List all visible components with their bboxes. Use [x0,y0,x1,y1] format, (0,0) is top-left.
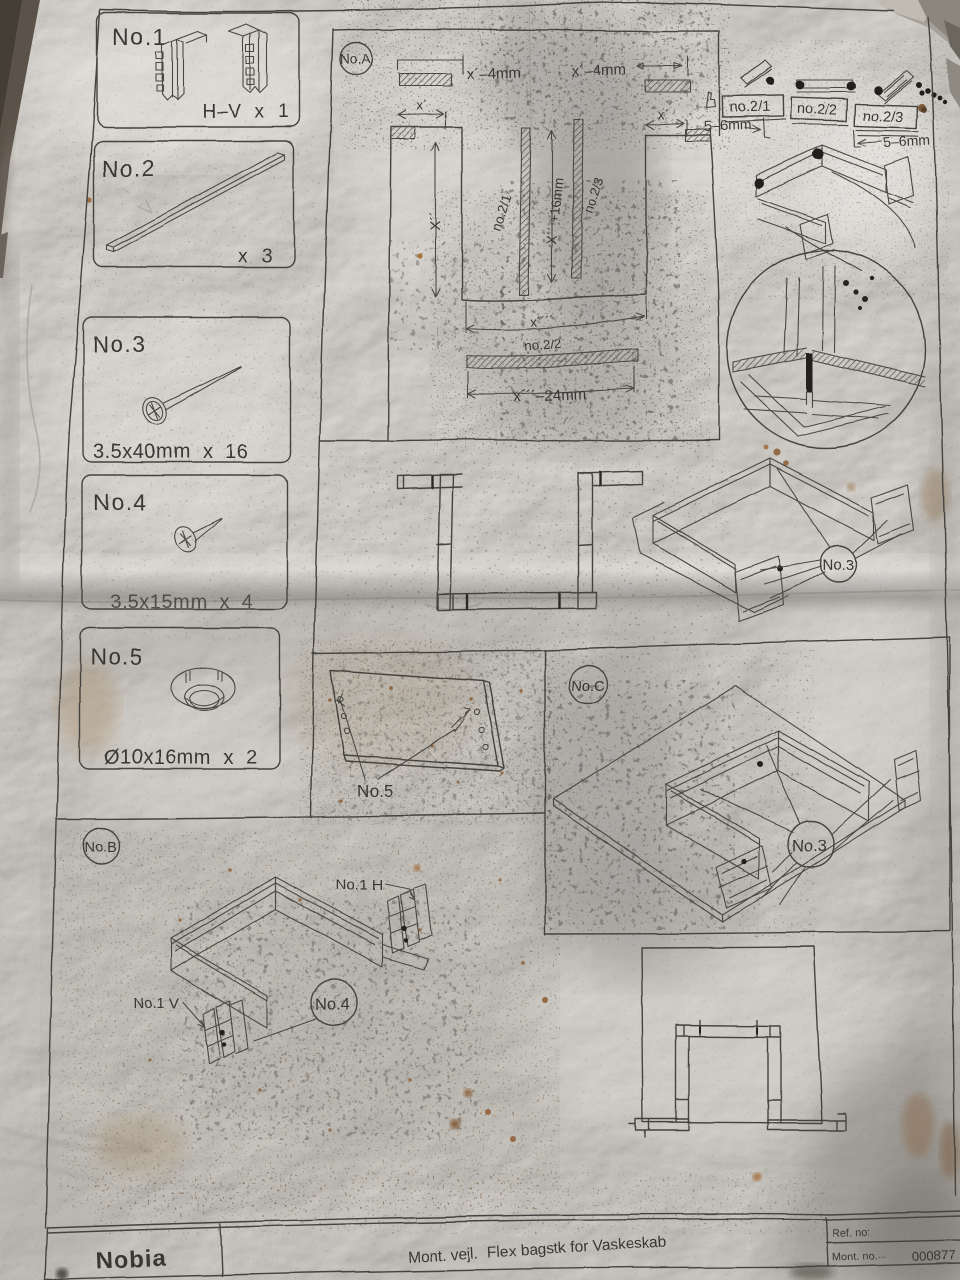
svg-text:no.2/1: no.2/1 [729,100,770,117]
svg-text:x´: x´ [658,107,669,122]
svg-text:No.C: No.C [571,679,604,695]
svg-text:No.3: No.3 [792,837,827,855]
svg-text:000877: 000877 [912,1247,956,1264]
svg-text:x 3: x 3 [238,246,273,267]
svg-text:Nobia: Nobia [95,1245,168,1275]
svg-text:x´–4mm: x´–4mm [467,64,522,83]
svg-text:No.4: No.4 [93,489,148,515]
svg-text:No.2: No.2 [102,155,157,181]
svg-text:No.4: No.4 [315,996,350,1014]
svg-text:no.2/2: no.2/2 [797,101,838,118]
svg-text:x´–4mm: x´–4mm [572,61,627,80]
svg-text:...: ... [878,1250,887,1261]
svg-text:5–6mm: 5–6mm [883,132,930,150]
svg-text:no.2/2: no.2/2 [523,336,562,354]
svg-text:x´: x´ [417,98,428,113]
svg-text:x´´´´: x´´´´ [529,313,555,330]
svg-text:X´´: X´´ [427,211,443,230]
svg-text:No.3: No.3 [92,331,147,357]
svg-text:3.5x40mm x 16: 3.5x40mm x 16 [93,441,248,463]
svg-text:Ref. no:: Ref. no: [832,1227,871,1240]
svg-text:No.3: No.3 [822,557,854,574]
svg-text:no.2/3: no.2/3 [863,108,904,125]
svg-text:No.A: No.A [340,51,370,66]
svg-text:No.5: No.5 [90,644,145,670]
svg-text:No.1: No.1 [113,24,168,50]
svg-text:5–6mm: 5–6mm [704,116,751,134]
svg-text:H–V x 1: H–V x 1 [202,102,289,123]
svg-text:No.B: No.B [84,840,116,856]
svg-text:3.5x15mm x 4: 3.5x15mm x 4 [110,591,254,613]
svg-text:Mont. no.: Mont. no. [832,1250,878,1264]
svg-text:No.1 V: No.1 V [133,995,179,1012]
svg-text:No.5: No.5 [357,781,393,800]
svg-text:Ø10x16mm x 2: Ø10x16mm x 2 [104,747,258,769]
svg-text:No.1 H: No.1 H [336,877,383,894]
